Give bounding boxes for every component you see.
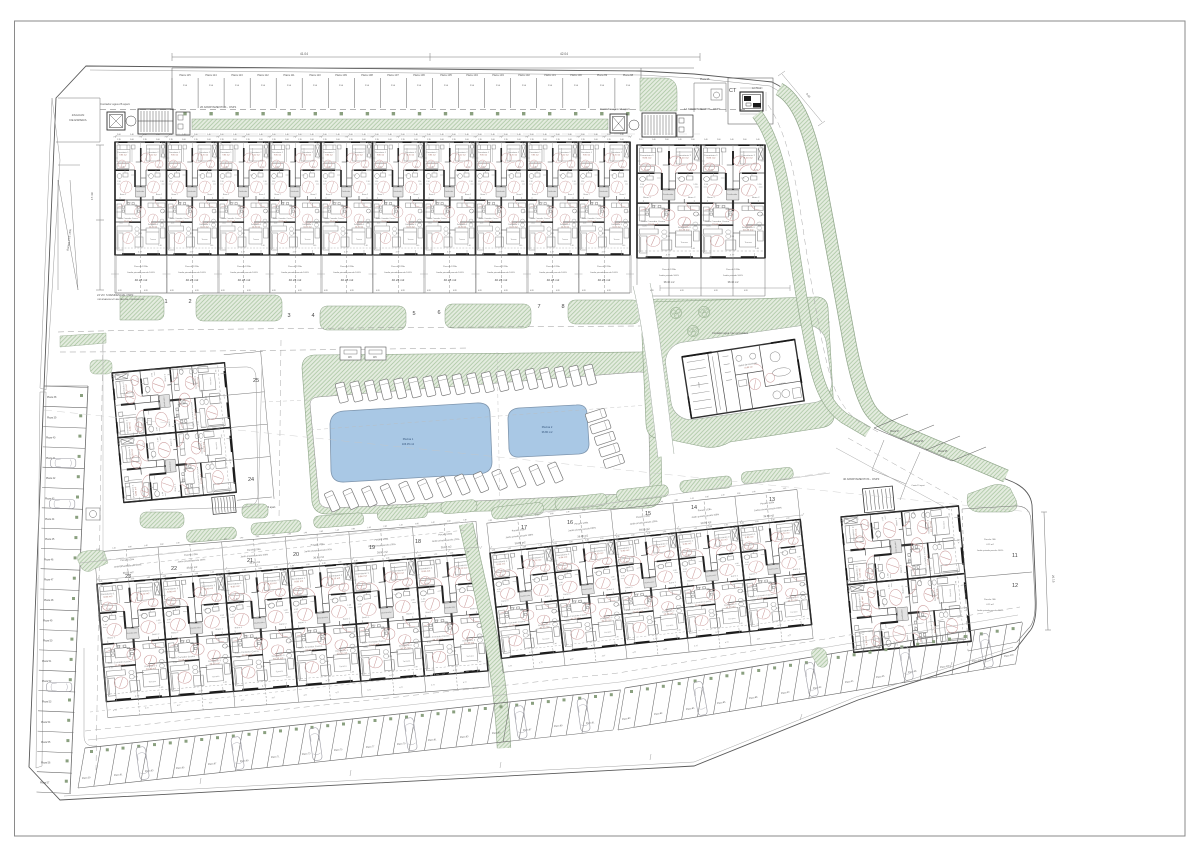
- svg-text:Parcela 1/2Ba: Parcela 1/2Ba: [391, 265, 406, 268]
- svg-text:3.35: 3.35: [163, 575, 167, 577]
- svg-text:1.40: 1.40: [756, 139, 760, 141]
- svg-text:1.35: 1.35: [349, 139, 353, 141]
- svg-text:1.35: 1.35: [117, 139, 121, 141]
- svg-text:40.28 m2: 40.28 m2: [495, 278, 508, 282]
- svg-text:1.35: 1.35: [143, 139, 147, 141]
- svg-text:1.00: 1.00: [663, 531, 667, 533]
- svg-text:4.77: 4.77: [431, 684, 435, 686]
- svg-text:1.40: 1.40: [628, 504, 632, 506]
- svg-text:4.28: 4.28: [453, 290, 457, 292]
- svg-text:Plaza 44: Plaza 44: [45, 518, 55, 521]
- svg-text:Plaza 107: Plaza 107: [387, 73, 399, 77]
- svg-text:Parcela 1/2Ba: Parcela 1/2Ba: [597, 265, 612, 268]
- svg-text:2.60: 2.60: [323, 134, 327, 136]
- svg-text:4.77: 4.77: [335, 692, 339, 694]
- svg-text:3.35: 3.35: [194, 573, 198, 575]
- svg-text:Plaza 46: Plaza 46: [44, 558, 54, 561]
- svg-text:2.60: 2.60: [220, 134, 224, 136]
- svg-text:1.40: 1.40: [336, 134, 340, 136]
- svg-text:Plaza 112: Plaza 112: [257, 73, 269, 77]
- svg-text:3.35: 3.35: [771, 519, 775, 521]
- svg-text:2.60: 2.60: [375, 134, 379, 136]
- svg-text:Plaza 108: Plaza 108: [361, 73, 373, 77]
- svg-text:2.60: 2.60: [504, 134, 508, 136]
- svg-text:4.77: 4.77: [367, 689, 371, 691]
- svg-text:Plaza 47: Plaza 47: [44, 579, 54, 582]
- svg-text:2.60: 2.60: [581, 134, 585, 136]
- svg-text:1.40: 1.40: [463, 519, 467, 521]
- svg-text:1.40: 1.40: [362, 134, 366, 136]
- svg-text:4.77: 4.77: [757, 638, 761, 640]
- svg-text:4.28: 4.28: [221, 290, 225, 292]
- svg-text:4.28: 4.28: [556, 290, 560, 292]
- svg-text:Plaza 102: Plaza 102: [518, 73, 530, 77]
- svg-text:1.40: 1.40: [783, 488, 787, 490]
- svg-text:1.00: 1.00: [491, 139, 495, 141]
- svg-text:DE ESPERA: DE ESPERA: [69, 118, 86, 122]
- svg-text:29.15: 29.15: [1051, 575, 1056, 583]
- svg-text:4.28: 4.28: [247, 290, 251, 292]
- svg-text:1.00: 1.00: [306, 564, 310, 566]
- svg-text:1.40: 1.40: [504, 518, 508, 520]
- svg-text:Plaza 97: Plaza 97: [890, 430, 900, 433]
- svg-text:1.00: 1.00: [362, 139, 366, 141]
- svg-text:1.40: 1.40: [335, 529, 339, 531]
- svg-text:4.77: 4.77: [272, 697, 276, 699]
- svg-text:2.60: 2.60: [519, 516, 523, 518]
- svg-text:12.75m2: 12.75m2: [752, 87, 762, 90]
- svg-text:1.40: 1.40: [730, 139, 734, 141]
- svg-text:4.15 m2: 4.15 m2: [986, 604, 994, 606]
- svg-text:1.40: 1.40: [259, 134, 263, 136]
- svg-text:1.35: 1.35: [581, 139, 585, 141]
- svg-text:1.40: 1.40: [388, 134, 392, 136]
- svg-text:4.28: 4.28: [478, 290, 482, 292]
- svg-text:2.60: 2.60: [349, 134, 353, 136]
- svg-text:1.00: 1.00: [147, 577, 151, 579]
- svg-text:Jardin privado 100%: Jardin privado 100%: [659, 274, 679, 277]
- svg-text:Parcela 1/2Ba: Parcela 1/2Ba: [662, 268, 677, 271]
- svg-text:2.60: 2.60: [639, 139, 643, 141]
- svg-text:Plaza 100: Plaza 100: [570, 73, 582, 77]
- svg-text:3.35: 3.35: [678, 529, 682, 531]
- svg-text:1.00: 1.00: [466, 551, 470, 553]
- svg-text:1.00: 1.00: [242, 569, 246, 571]
- svg-text:Parcela 1/2Ba: Parcela 1/2Ba: [726, 268, 741, 271]
- svg-text:ZAGUAN: ZAGUAN: [72, 113, 85, 117]
- svg-text:Plaza 101: Plaza 101: [544, 73, 556, 77]
- svg-text:4: 4: [311, 313, 314, 319]
- svg-text:1.40: 1.40: [156, 134, 160, 136]
- svg-text:4.28: 4.28: [118, 290, 122, 292]
- svg-text:1.40: 1.40: [207, 134, 211, 136]
- svg-text:2.60: 2.60: [556, 134, 560, 136]
- svg-text:8: 8: [561, 304, 564, 310]
- svg-text:1.40: 1.40: [678, 139, 682, 141]
- svg-text:1.40: 1.40: [620, 134, 624, 136]
- svg-text:1.40: 1.40: [659, 501, 663, 503]
- svg-text:Jardin privado parcela 100%: Jardin privado parcela 100%: [230, 271, 258, 274]
- svg-text:2.60: 2.60: [607, 134, 611, 136]
- svg-text:1.35: 1.35: [427, 139, 431, 141]
- svg-text:1.00: 1.00: [517, 139, 521, 141]
- svg-text:2.60: 2.60: [743, 139, 747, 141]
- svg-text:1.00: 1.00: [538, 544, 542, 546]
- svg-text:1.40: 1.40: [399, 524, 403, 526]
- svg-text:1.00: 1.00: [631, 534, 635, 536]
- svg-text:WC: WC: [373, 356, 377, 359]
- svg-text:4.15 m2: 4.15 m2: [986, 544, 994, 546]
- svg-text:4.77: 4.77: [304, 695, 308, 697]
- svg-text:2.60: 2.60: [194, 134, 198, 136]
- svg-text:4.28: 4.28: [272, 290, 276, 292]
- svg-text:1.35: 1.35: [220, 139, 224, 141]
- svg-text:Plaza 40: Plaza 40: [46, 437, 56, 440]
- svg-text:1.00: 1.00: [508, 548, 512, 550]
- svg-text:1.40: 1.40: [597, 508, 601, 510]
- svg-text:2.60: 2.60: [478, 134, 482, 136]
- svg-text:1.35: 1.35: [375, 139, 379, 141]
- svg-text:1.40: 1.40: [112, 547, 116, 549]
- svg-text:1.00: 1.00: [388, 139, 392, 141]
- svg-text:2.60: 2.60: [447, 520, 451, 522]
- svg-text:Parcela OBL: Parcela OBL: [984, 538, 997, 541]
- svg-text:2.60: 2.60: [530, 134, 534, 136]
- svg-text:2.60: 2.60: [224, 538, 228, 540]
- svg-text:Parcela 1/2Ba: Parcela 1/2Ba: [237, 265, 252, 268]
- svg-text:1.35: 1.35: [401, 139, 405, 141]
- svg-text:1.40: 1.40: [310, 134, 314, 136]
- svg-text:2.60: 2.60: [768, 489, 772, 491]
- svg-text:2.60: 2.60: [169, 134, 173, 136]
- svg-text:Plaza 55: Plaza 55: [41, 741, 51, 744]
- svg-text:Plaza 39: Plaza 39: [47, 416, 57, 419]
- svg-text:2.60: 2.60: [288, 533, 292, 535]
- svg-text:3.35: 3.35: [131, 578, 135, 580]
- svg-text:Piscina 1: Piscina 1: [403, 437, 414, 441]
- svg-text:6: 6: [437, 310, 440, 316]
- svg-text:4.77: 4.77: [177, 705, 181, 707]
- svg-text:4.28: 4.28: [195, 290, 199, 292]
- svg-text:2.60: 2.60: [143, 134, 147, 136]
- svg-text:4.77: 4.77: [508, 665, 512, 667]
- svg-text:3: 3: [287, 313, 290, 319]
- svg-text:7: 7: [537, 304, 540, 310]
- svg-text:Plaza 42: Plaza 42: [46, 477, 56, 480]
- svg-text:38.40 m2: 38.40 m2: [728, 280, 739, 284]
- svg-text:4.28: 4.28: [350, 290, 354, 292]
- svg-text:40.28 m2: 40.28 m2: [598, 278, 611, 282]
- svg-text:40.28 m2: 40.28 m2: [135, 278, 148, 282]
- svg-text:Plaza 104: Plaza 104: [466, 73, 478, 77]
- svg-text:1.40: 1.40: [130, 134, 134, 136]
- svg-text:1.35: 1.35: [452, 139, 456, 141]
- svg-text:2.60: 2.60: [383, 526, 387, 528]
- svg-text:1.00: 1.00: [465, 139, 469, 141]
- svg-text:Parcela 1/2Ba: Parcela 1/2Ba: [134, 265, 149, 268]
- svg-text:1.35: 1.35: [246, 139, 250, 141]
- svg-text:17: 17: [521, 525, 527, 531]
- svg-text:2.60: 2.60: [272, 134, 276, 136]
- svg-text:4.28: 4.28: [650, 290, 654, 292]
- svg-text:1.35: 1.35: [504, 139, 508, 141]
- svg-text:4.28: 4.28: [582, 290, 586, 292]
- svg-text:1.35: 1.35: [607, 139, 611, 141]
- svg-text:2.60: 2.60: [644, 503, 648, 505]
- svg-text:1.40: 1.40: [704, 139, 708, 141]
- svg-text:40.28 m2: 40.28 m2: [238, 278, 251, 282]
- svg-text:19: 19: [369, 545, 375, 551]
- svg-text:Plaza 109: Plaza 109: [335, 73, 347, 77]
- svg-text:3.35: 3.35: [99, 581, 103, 583]
- svg-text:Jardin privado parcela 100%: Jardin privado parcela 100%: [436, 271, 464, 274]
- svg-text:2.60: 2.60: [351, 528, 355, 530]
- svg-text:14: 14: [691, 505, 697, 511]
- svg-text:2.60: 2.60: [415, 523, 419, 525]
- svg-text:2.60: 2.60: [298, 134, 302, 136]
- svg-text:3.35: 3.35: [740, 522, 744, 524]
- svg-text:Plaza 45: Plaza 45: [45, 538, 55, 541]
- svg-text:Plaza 49: Plaza 49: [43, 619, 53, 622]
- svg-text:Parcela OBL: Parcela OBL: [984, 598, 997, 601]
- svg-text:1.00: 1.00: [724, 524, 728, 526]
- svg-text:2.60: 2.60: [737, 493, 741, 495]
- svg-text:2.60: 2.60: [246, 134, 250, 136]
- svg-text:1.00: 1.00: [274, 566, 278, 568]
- svg-text:Jardin privado parcela 100%: Jardin privado parcela 100%: [281, 271, 309, 274]
- svg-text:Piscina 2: Piscina 2: [542, 425, 553, 429]
- svg-text:4.28: 4.28: [170, 290, 174, 292]
- svg-text:36.80 m2: 36.80 m2: [542, 430, 553, 434]
- svg-text:1.00: 1.00: [207, 139, 211, 141]
- svg-text:22: 22: [171, 566, 177, 572]
- svg-text:1.40: 1.40: [566, 511, 570, 513]
- svg-text:4.77: 4.77: [399, 687, 403, 689]
- svg-text:1.00: 1.00: [434, 554, 438, 556]
- svg-text:1.00: 1.00: [568, 139, 572, 141]
- svg-text:11: 11: [1012, 553, 1018, 559]
- svg-text:Plaza 98: Plaza 98: [700, 78, 710, 81]
- svg-text:4.77: 4.77: [725, 642, 729, 644]
- svg-text:1.00: 1.00: [178, 574, 182, 576]
- svg-text:2.60: 2.60: [674, 499, 678, 501]
- svg-text:Jardin privado parcela 100%: Jardin privado parcela 100%: [487, 271, 515, 274]
- svg-text:4.28: 4.28: [714, 290, 718, 292]
- svg-text:1.00: 1.00: [594, 139, 598, 141]
- svg-text:2.60: 2.60: [488, 520, 492, 522]
- svg-text:5: 5: [412, 311, 415, 317]
- svg-text:3.35: 3.35: [322, 563, 326, 565]
- svg-text:Plaza 103: Plaza 103: [492, 73, 504, 77]
- svg-text:1.40: 1.40: [367, 527, 371, 529]
- svg-text:Parcela 1/2Ba: Parcela 1/2Ba: [443, 265, 458, 268]
- svg-text:Jardin privado parcela 100%: Jardin privado parcela 100%: [333, 271, 361, 274]
- svg-text:4.77: 4.77: [539, 662, 543, 664]
- svg-text:1.00: 1.00: [440, 139, 444, 141]
- svg-text:2: 2: [188, 299, 191, 305]
- svg-text:Plaza 113: Plaza 113: [231, 73, 243, 77]
- svg-text:Jardin privado 100%: Jardin privado 100%: [723, 274, 743, 277]
- svg-text:1.00: 1.00: [210, 572, 214, 574]
- svg-text:1.40: 1.40: [285, 134, 289, 136]
- svg-text:1.40: 1.40: [440, 134, 444, 136]
- svg-text:Plaza 38: Plaza 38: [47, 396, 57, 399]
- svg-text:2.60: 2.60: [613, 506, 617, 508]
- svg-text:1.00: 1.00: [285, 139, 289, 141]
- svg-text:4.77: 4.77: [788, 635, 792, 637]
- svg-text:1.40: 1.40: [233, 134, 237, 136]
- svg-text:41.04: 41.04: [300, 52, 308, 56]
- svg-text:1.35: 1.35: [272, 139, 276, 141]
- svg-text:1.40: 1.40: [176, 542, 180, 544]
- svg-text:3.35: 3.35: [616, 536, 620, 538]
- svg-text:2.60: 2.60: [117, 134, 121, 136]
- svg-text:1.40: 1.40: [652, 139, 656, 141]
- svg-text:Plaza 51: Plaza 51: [42, 660, 52, 663]
- svg-text:4.28: 4.28: [744, 290, 748, 292]
- svg-text:1.40: 1.40: [491, 134, 495, 136]
- svg-text:1.35: 1.35: [169, 139, 173, 141]
- svg-text:Plaza 114: Plaza 114: [205, 73, 217, 77]
- svg-text:4.77: 4.77: [209, 702, 213, 704]
- svg-text:4.77: 4.77: [145, 707, 149, 709]
- svg-text:13: 13: [769, 497, 775, 503]
- svg-text:1.40: 1.40: [414, 134, 418, 136]
- svg-text:40.28 m2: 40.28 m2: [444, 278, 457, 282]
- svg-text:1.35: 1.35: [530, 139, 534, 141]
- svg-text:26 APARTAMENTOS - OSP1: 26 APARTAMENTOS - OSP1: [200, 105, 237, 109]
- svg-text:1.35: 1.35: [194, 139, 198, 141]
- svg-text:40.28 m2: 40.28 m2: [341, 278, 354, 282]
- svg-text:40 APARTAMENTOS - OSP3: 40 APARTAMENTOS - OSP3: [843, 477, 880, 481]
- svg-text:Plaza 95: Plaza 95: [938, 450, 948, 453]
- svg-text:1: 1: [164, 299, 167, 305]
- svg-text:Parcela 1/2Ba: Parcela 1/2Ba: [546, 265, 561, 268]
- svg-text:Plaza 106: Plaza 106: [413, 73, 425, 77]
- svg-text:1.40: 1.40: [272, 535, 276, 537]
- svg-text:Contador agua 26 apart.: Contador agua 26 apart.: [100, 102, 131, 106]
- svg-text:1.00: 1.00: [115, 579, 119, 581]
- svg-text:Plaza 54: Plaza 54: [41, 721, 51, 724]
- svg-text:CT: CT: [729, 88, 737, 94]
- svg-text:2.60: 2.60: [691, 139, 695, 141]
- svg-text:2.60: 2.60: [256, 536, 260, 538]
- svg-text:2.60: 2.60: [192, 541, 196, 543]
- svg-text:Plaza 96: Plaza 96: [914, 440, 924, 443]
- svg-text:1.35: 1.35: [323, 139, 327, 141]
- svg-text:1.40: 1.40: [144, 545, 148, 547]
- svg-text:1.00: 1.00: [543, 139, 547, 141]
- svg-text:4.28: 4.28: [680, 290, 684, 292]
- svg-text:Contador agua 14 apart.: Contador agua 14 apart.: [600, 107, 631, 111]
- svg-text:Contador agua / jac comunales: Contador agua / jac comunales: [712, 331, 749, 335]
- svg-text:1.00: 1.00: [233, 139, 237, 141]
- svg-text:3.35: 3.35: [290, 565, 294, 567]
- svg-text:38.40 m2: 38.40 m2: [664, 280, 675, 284]
- svg-text:1.00: 1.00: [693, 527, 697, 529]
- svg-text:3.35: 3.35: [450, 552, 454, 554]
- svg-text:42.04: 42.04: [560, 52, 568, 56]
- svg-text:1.00: 1.00: [259, 139, 263, 141]
- svg-text:3.35: 3.35: [585, 539, 589, 541]
- svg-text:4.28: 4.28: [607, 290, 611, 292]
- svg-text:4.77: 4.77: [663, 648, 667, 650]
- svg-text:4.28: 4.28: [144, 290, 148, 292]
- svg-text:1.40: 1.40: [517, 134, 521, 136]
- svg-text:1.00: 1.00: [370, 559, 374, 561]
- svg-text:1.40: 1.40: [465, 134, 469, 136]
- svg-text:1.40: 1.40: [543, 134, 547, 136]
- svg-text:24 VIV. S RESIDENCIAL OSP2: 24 VIV. S RESIDENCIAL OSP2: [97, 293, 134, 297]
- svg-text:20: 20: [293, 552, 299, 558]
- svg-text:12: 12: [1012, 583, 1018, 589]
- svg-text:40.28 m2: 40.28 m2: [392, 278, 405, 282]
- svg-text:2.60: 2.60: [705, 496, 709, 498]
- svg-text:2.60: 2.60: [319, 531, 323, 533]
- svg-text:4.77: 4.77: [241, 700, 245, 702]
- svg-text:3.35: 3.35: [522, 546, 526, 548]
- svg-text:40.28 m2: 40.28 m2: [289, 278, 302, 282]
- svg-text:3.35: 3.35: [258, 568, 262, 570]
- svg-text:Parcela 1/2Ba: Parcela 1/2Ba: [340, 265, 355, 268]
- svg-text:WC: WC: [348, 356, 352, 359]
- svg-text:1.00: 1.00: [569, 541, 573, 543]
- svg-text:24: 24: [248, 477, 254, 483]
- svg-text:3.35: 3.35: [386, 557, 390, 559]
- svg-text:1.35: 1.35: [298, 139, 302, 141]
- svg-text:4.77: 4.77: [633, 652, 637, 654]
- svg-text:1.40: 1.40: [690, 498, 694, 500]
- svg-text:1.40: 1.40: [535, 515, 539, 517]
- svg-text:2.60: 2.60: [550, 513, 554, 515]
- svg-text:1.00: 1.00: [310, 139, 314, 141]
- svg-text:Plaza 99: Plaza 99: [597, 73, 608, 77]
- svg-text:4.77: 4.77: [602, 655, 606, 657]
- svg-text:Jardin privado parcela 100%: Jardin privado parcela 100%: [127, 271, 155, 274]
- svg-text:Jardin privado parcela 100%: Jardin privado parcela 100%: [590, 271, 618, 274]
- svg-text:3.35: 3.35: [354, 560, 358, 562]
- svg-text:2.60: 2.60: [427, 134, 431, 136]
- svg-text:1.35: 1.35: [478, 139, 482, 141]
- svg-text:1.00: 1.00: [620, 139, 624, 141]
- svg-text:4.28: 4.28: [376, 290, 380, 292]
- svg-text:1.40: 1.40: [431, 522, 435, 524]
- svg-text:1.00: 1.00: [338, 561, 342, 563]
- svg-text:Jardin privado parcela 100%: Jardin privado parcela 100%: [384, 271, 412, 274]
- svg-text:Jardin privado parcela 100%: Jardin privado parcela 100%: [539, 271, 567, 274]
- svg-text:4.28: 4.28: [530, 290, 534, 292]
- svg-text:2.60: 2.60: [665, 139, 669, 141]
- svg-text:1.40: 1.40: [182, 134, 186, 136]
- svg-text:15: 15: [645, 511, 651, 517]
- svg-text:1.35: 1.35: [556, 139, 560, 141]
- svg-text:4.28: 4.28: [324, 290, 328, 292]
- svg-text:Plaza 115: Plaza 115: [179, 73, 191, 77]
- svg-text:Plaza 48: Plaza 48: [44, 599, 54, 602]
- svg-text:3.35: 3.35: [553, 543, 557, 545]
- svg-text:1.40: 1.40: [752, 491, 756, 493]
- svg-text:40.28 m2: 40.28 m2: [547, 278, 560, 282]
- svg-text:2.60: 2.60: [96, 549, 100, 551]
- svg-text:3.35: 3.35: [492, 549, 496, 551]
- svg-text:1.40: 1.40: [594, 134, 598, 136]
- svg-text:4.77: 4.77: [463, 682, 467, 684]
- svg-text:Plaza 50: Plaza 50: [43, 640, 53, 643]
- svg-text:3.35: 3.35: [708, 526, 712, 528]
- svg-text:1.40: 1.40: [208, 540, 212, 542]
- svg-text:Parcela 1/2Ba: Parcela 1/2Ba: [494, 265, 509, 268]
- svg-text:21: 21: [247, 558, 253, 564]
